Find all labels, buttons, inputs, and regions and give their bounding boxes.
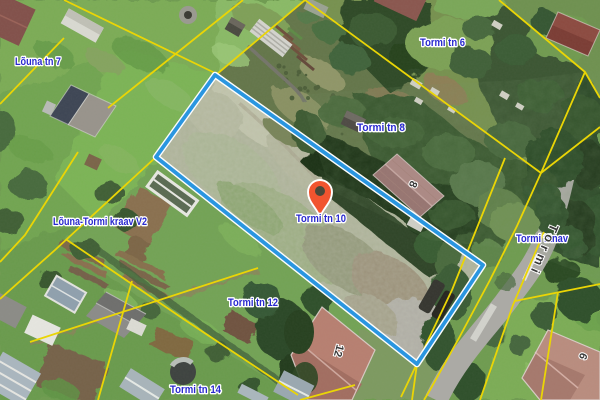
svg-text:Tormi tn 14: Tormi tn 14 bbox=[170, 384, 222, 396]
svg-text:Lõuna tn 7: Lõuna tn 7 bbox=[15, 56, 61, 68]
svg-text:Lõuna-Tormi kraav V2: Lõuna-Tormi kraav V2 bbox=[53, 216, 147, 228]
svg-text:Tormi tn 12: Tormi tn 12 bbox=[228, 297, 278, 309]
svg-text:Tormi tn 6: Tormi tn 6 bbox=[420, 37, 465, 49]
svg-text:Tormi tn 8: Tormi tn 8 bbox=[357, 122, 405, 134]
svg-text:Tormi tn 10: Tormi tn 10 bbox=[296, 213, 346, 225]
